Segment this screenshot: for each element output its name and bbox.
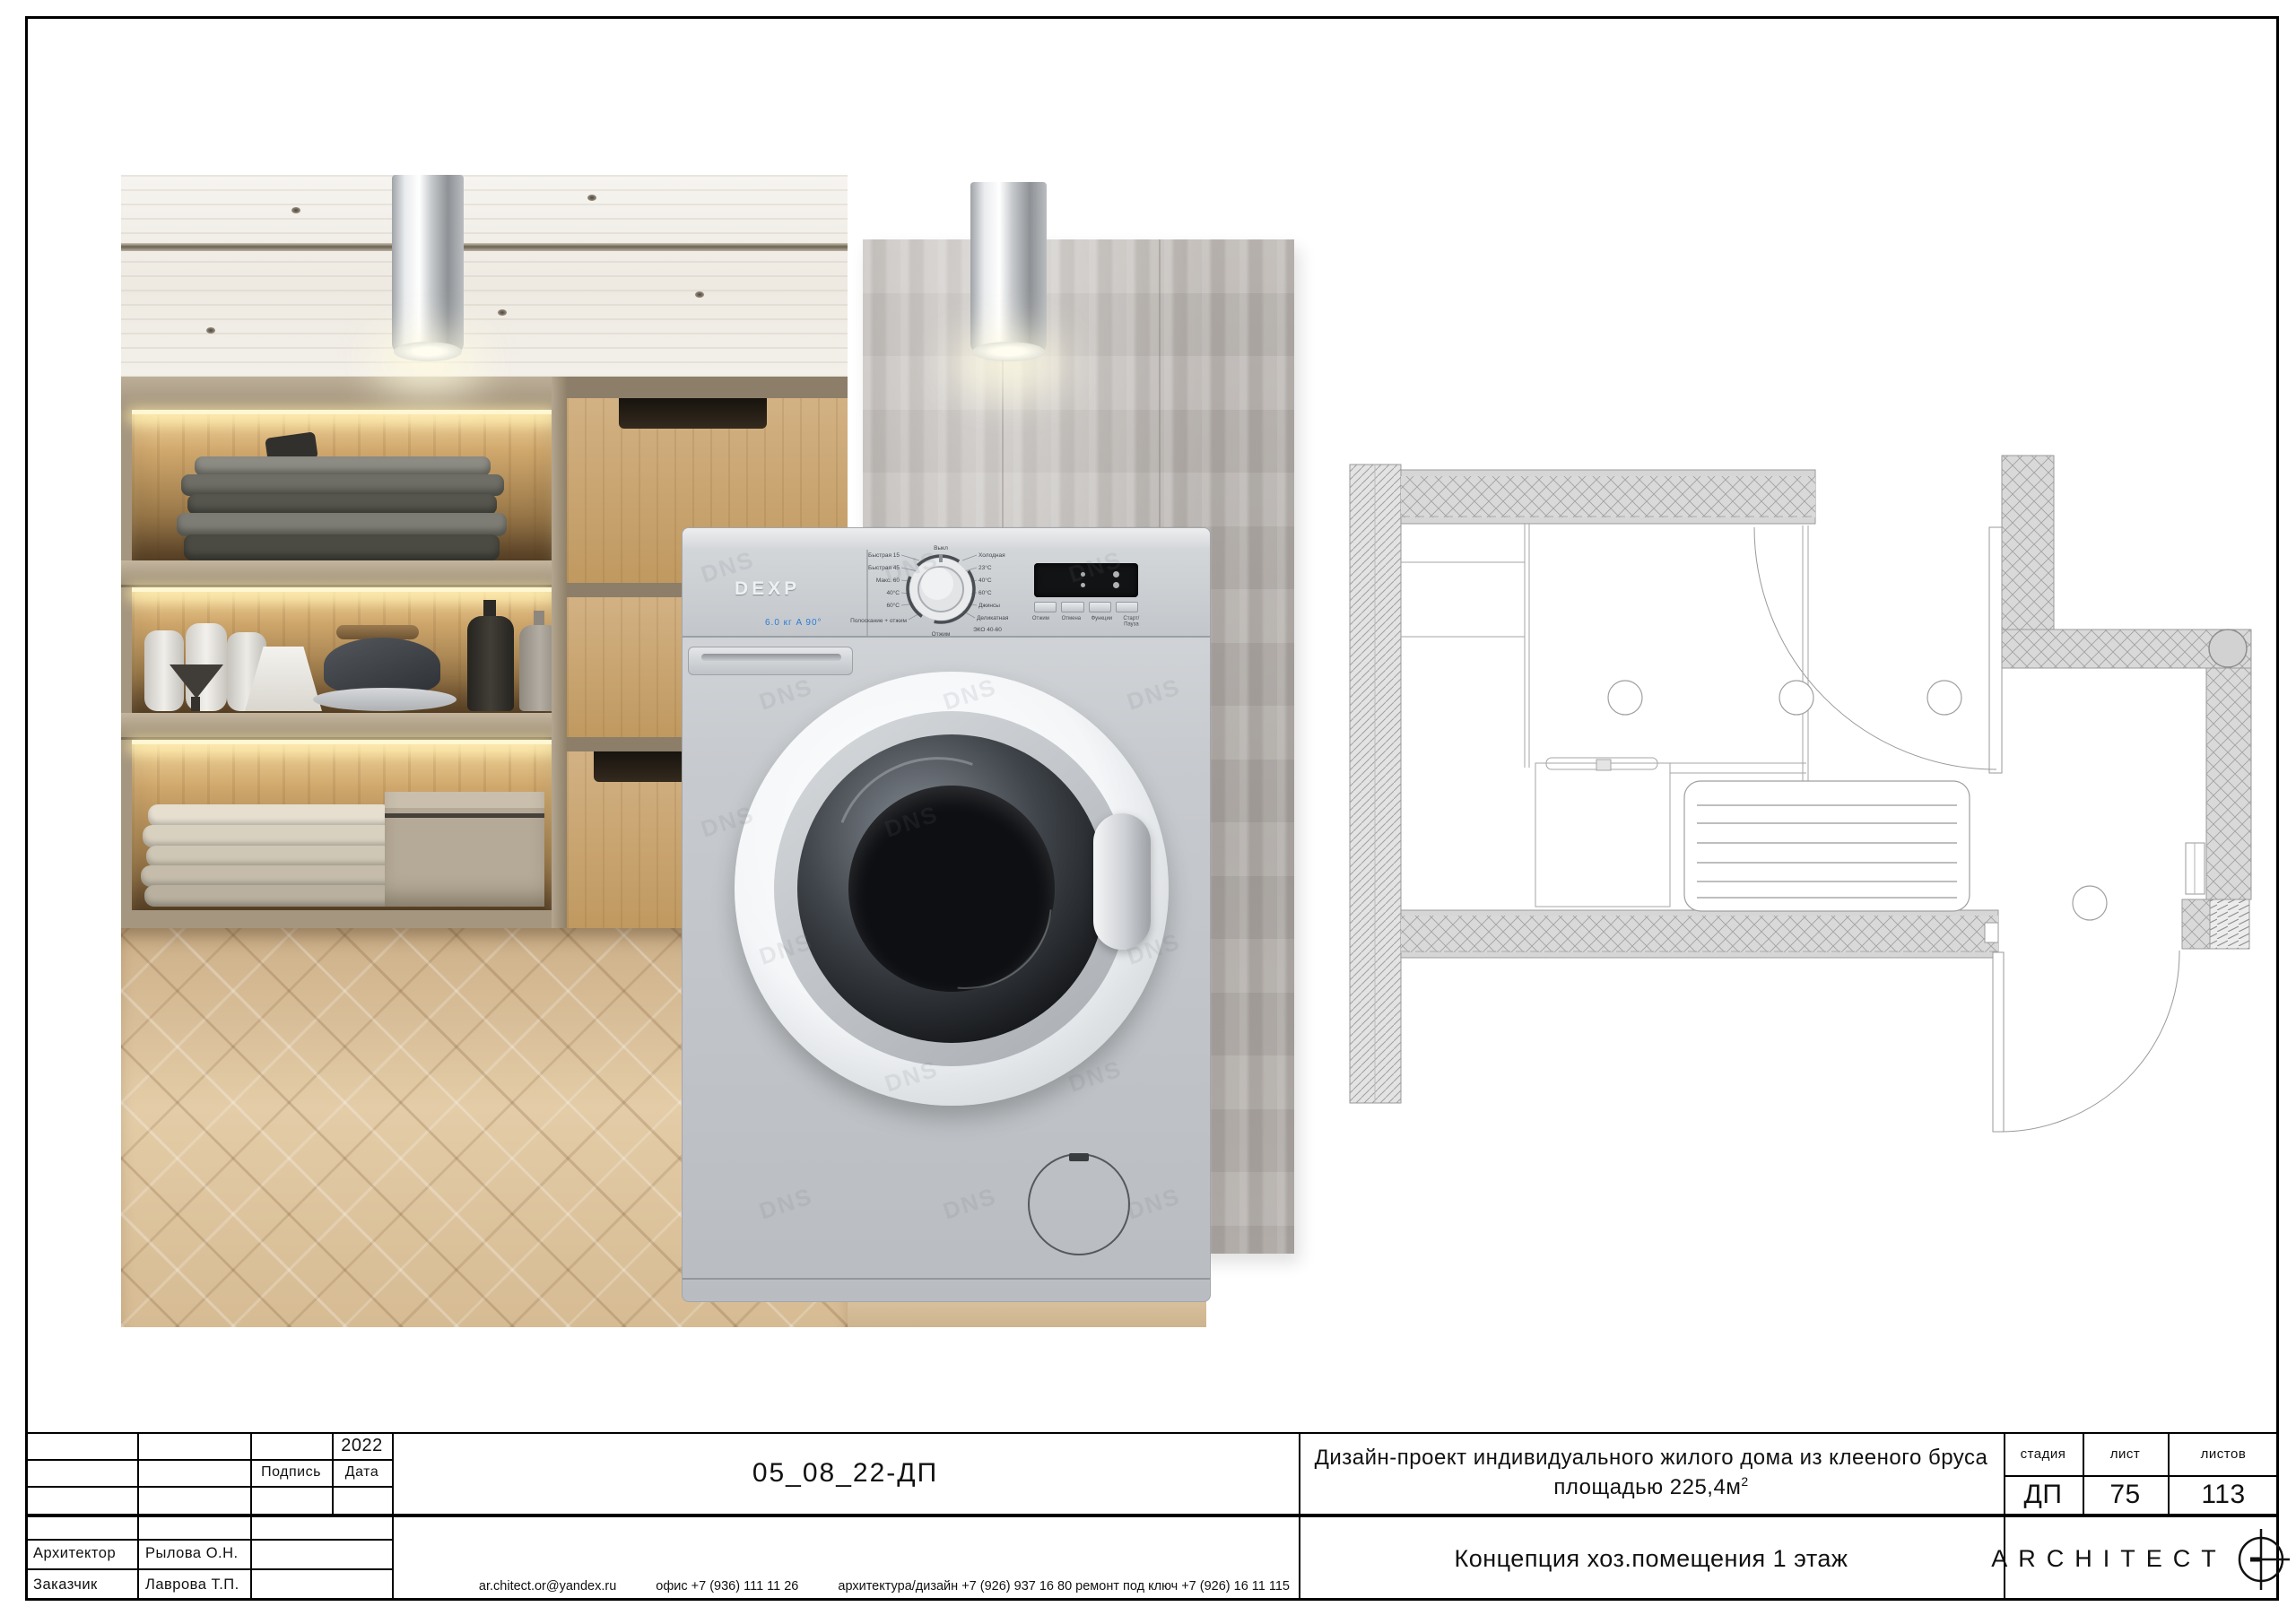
towel [141,865,396,887]
light-lens [394,342,463,361]
dial-label-top: Выкл [934,545,948,551]
sheets-total: 113 [2168,1475,2279,1514]
led-strip [132,740,552,744]
towel [143,825,396,847]
towel [148,804,392,827]
architect-name: Рылова О.Н. [137,1539,250,1568]
project-title-line1: Дизайн-проект индивидуального жилого дом… [1315,1444,1988,1472]
washer-specs: 6.0 кг A 90° [765,618,822,628]
stage-label: стадия [2004,1432,2083,1475]
door-swing-arc [1754,527,1996,769]
architect-logo-icon [2236,1527,2292,1592]
contacts-cell: ar.chitect.or@yandex.ru офис +7 (936) 11… [392,1517,1299,1601]
dns-watermark: DNS [1124,673,1185,716]
funnel-stem [191,697,200,711]
shelf-opening-towels [132,740,552,910]
folded-cloth [181,474,504,496]
document-code: 05_08_22-ДП [392,1432,1299,1514]
wood-knot [206,327,215,334]
iron-soleplate [313,688,457,711]
contact-office-phone: офис +7 (936) 111 11 26 [656,1579,798,1594]
funnel [170,664,223,699]
dial-face-highlight [921,568,953,600]
dial-pointer [939,554,943,562]
stamp-year: 2022 [332,1432,392,1459]
sheet-label: лист [2083,1432,2168,1475]
dial-label: Холодная [978,552,1005,559]
ceiling-light-2 [970,182,1047,354]
washer-button [1034,602,1057,612]
dns-watermark: DNS [756,1182,817,1225]
plank-groove [121,243,848,251]
wardrobe-stile [552,377,567,928]
sheet-number: 75 [2083,1475,2168,1514]
washer-display [1034,563,1138,597]
washer-button-label: Функции [1089,616,1114,628]
dns-watermark: DNS [940,1182,1001,1225]
dial-label-bottom: Отжим [932,631,951,638]
client-name: Лаврова Т.П. [137,1568,250,1601]
towel [146,846,394,867]
title-block: 2022 Подпись Дата Архитектор Рылова О.Н.… [25,1432,2279,1601]
wood-knot [587,195,596,201]
brand-cell: ARCHITECT [2004,1517,2279,1601]
dns-watermark: DNS [756,673,817,716]
door-leaf [1993,952,2004,1132]
washer-program-dial: Выкл Быстрая 15 Быстрая 45 Макс. 60 40°C… [844,543,1034,639]
date-label: Дата [332,1459,392,1486]
contact-design-phone: архитектура/дизайн +7 (926) 937 16 80 ре… [838,1579,1290,1594]
kick-line [683,1278,1210,1280]
led-strip [132,587,552,592]
white-wood-planks [121,175,848,377]
folded-cloth [177,513,507,536]
dial-label: Макс. 60 [876,578,900,584]
dial-label: Быстрая 45 [868,565,900,571]
light-lens [972,342,1046,361]
storage-box [385,792,544,907]
dial-label: 60°C [978,589,992,596]
washer-brand-logo: DEXP [735,578,800,600]
folded-cloth [187,494,497,515]
door-swing-arc [1998,951,2179,1132]
dial-label: 23°C [978,564,992,571]
door-middle-ring [774,711,1129,1066]
detergent-drawer [688,647,853,675]
signature-label: Подпись [250,1459,332,1486]
dial-label: 60°C [886,602,900,609]
filter-door [1028,1153,1130,1255]
washer-button-label: Старт/Пауза [1118,616,1144,628]
box-lid-line [385,813,544,818]
shelf [121,560,567,587]
dial-label: Деликатная [977,615,1009,621]
shelf [121,713,567,740]
plan-walls [1350,456,2251,1103]
shelf-opening-textiles [132,410,552,560]
dial-label: 40°C [978,577,992,584]
washer-button [1089,602,1111,612]
drying-rack [1684,781,1970,911]
dial-label: Джинсы [978,603,1000,609]
ceiling-light-1 [392,175,464,354]
door-glass [797,734,1106,1043]
faucet [1596,760,1611,770]
client-label: Заказчик [25,1568,137,1601]
dial-label: ЭКО 40-60 [973,627,1002,633]
door-leaf [1989,527,2002,773]
door-handle [1093,813,1151,950]
folded-cloth [184,534,500,560]
brand-name: ARCHITECT [1991,1545,2227,1573]
floor-plan [1345,444,2260,1152]
washer-buttons [1034,602,1138,612]
sheet-title: Концепция хоз.помещения 1 этаж [1299,1517,2004,1601]
towel [144,885,394,907]
plan-interior [1401,524,1970,911]
iron-body [324,638,440,693]
dial-label: 40°C [886,589,900,596]
sheets-label: листов [2168,1432,2279,1475]
project-title-line2: площадью 225,4м2 [1553,1473,1748,1502]
shelf-opening-laundry-items [132,587,552,713]
led-strip [132,410,552,414]
dark-bottle [467,616,514,711]
column [2209,630,2247,667]
washing-machine: DEXP 6.0 кг A 90° Выкл Быстрая 15 Быстра… [682,527,1211,1302]
stage-value: ДП [2004,1475,2083,1514]
dial-label: Полоскание + отжим [850,618,907,624]
wood-knot [695,291,704,298]
washer-button-label: Отмена [1058,616,1083,628]
dns-watermark: DNS [1124,1182,1185,1225]
washer-button [1116,602,1138,612]
architect-label: Архитектор [25,1539,137,1568]
dial-label: Быстрая 15 [868,552,900,559]
project-title: Дизайн-проект индивидуального жилого дом… [1299,1432,2004,1514]
folded-cloth [195,456,491,476]
wood-knot [291,207,300,213]
counter [1535,763,1670,907]
washer-button [1061,602,1083,612]
washer-button-labels: Отжим Отмена Функции Старт/Пауза [1027,615,1145,628]
washer-button-label: Отжим [1028,616,1053,628]
wood-knot [498,309,507,316]
contact-email: ar.chitect.or@yandex.ru [479,1579,616,1594]
contacts-line: ar.chitect.or@yandex.ru офис +7 (936) 11… [479,1579,1290,1594]
drawer-handle-notch [619,398,767,429]
